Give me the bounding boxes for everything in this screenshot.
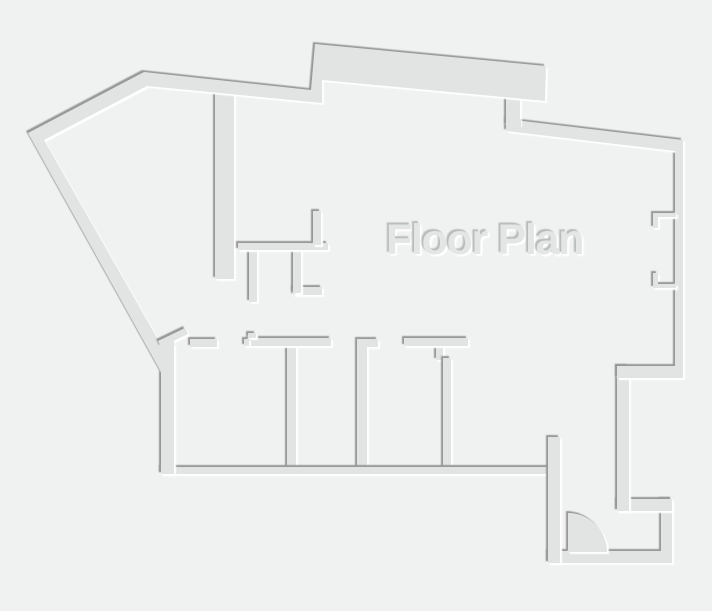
- svg-text:Floor Plan: Floor Plan: [386, 216, 583, 264]
